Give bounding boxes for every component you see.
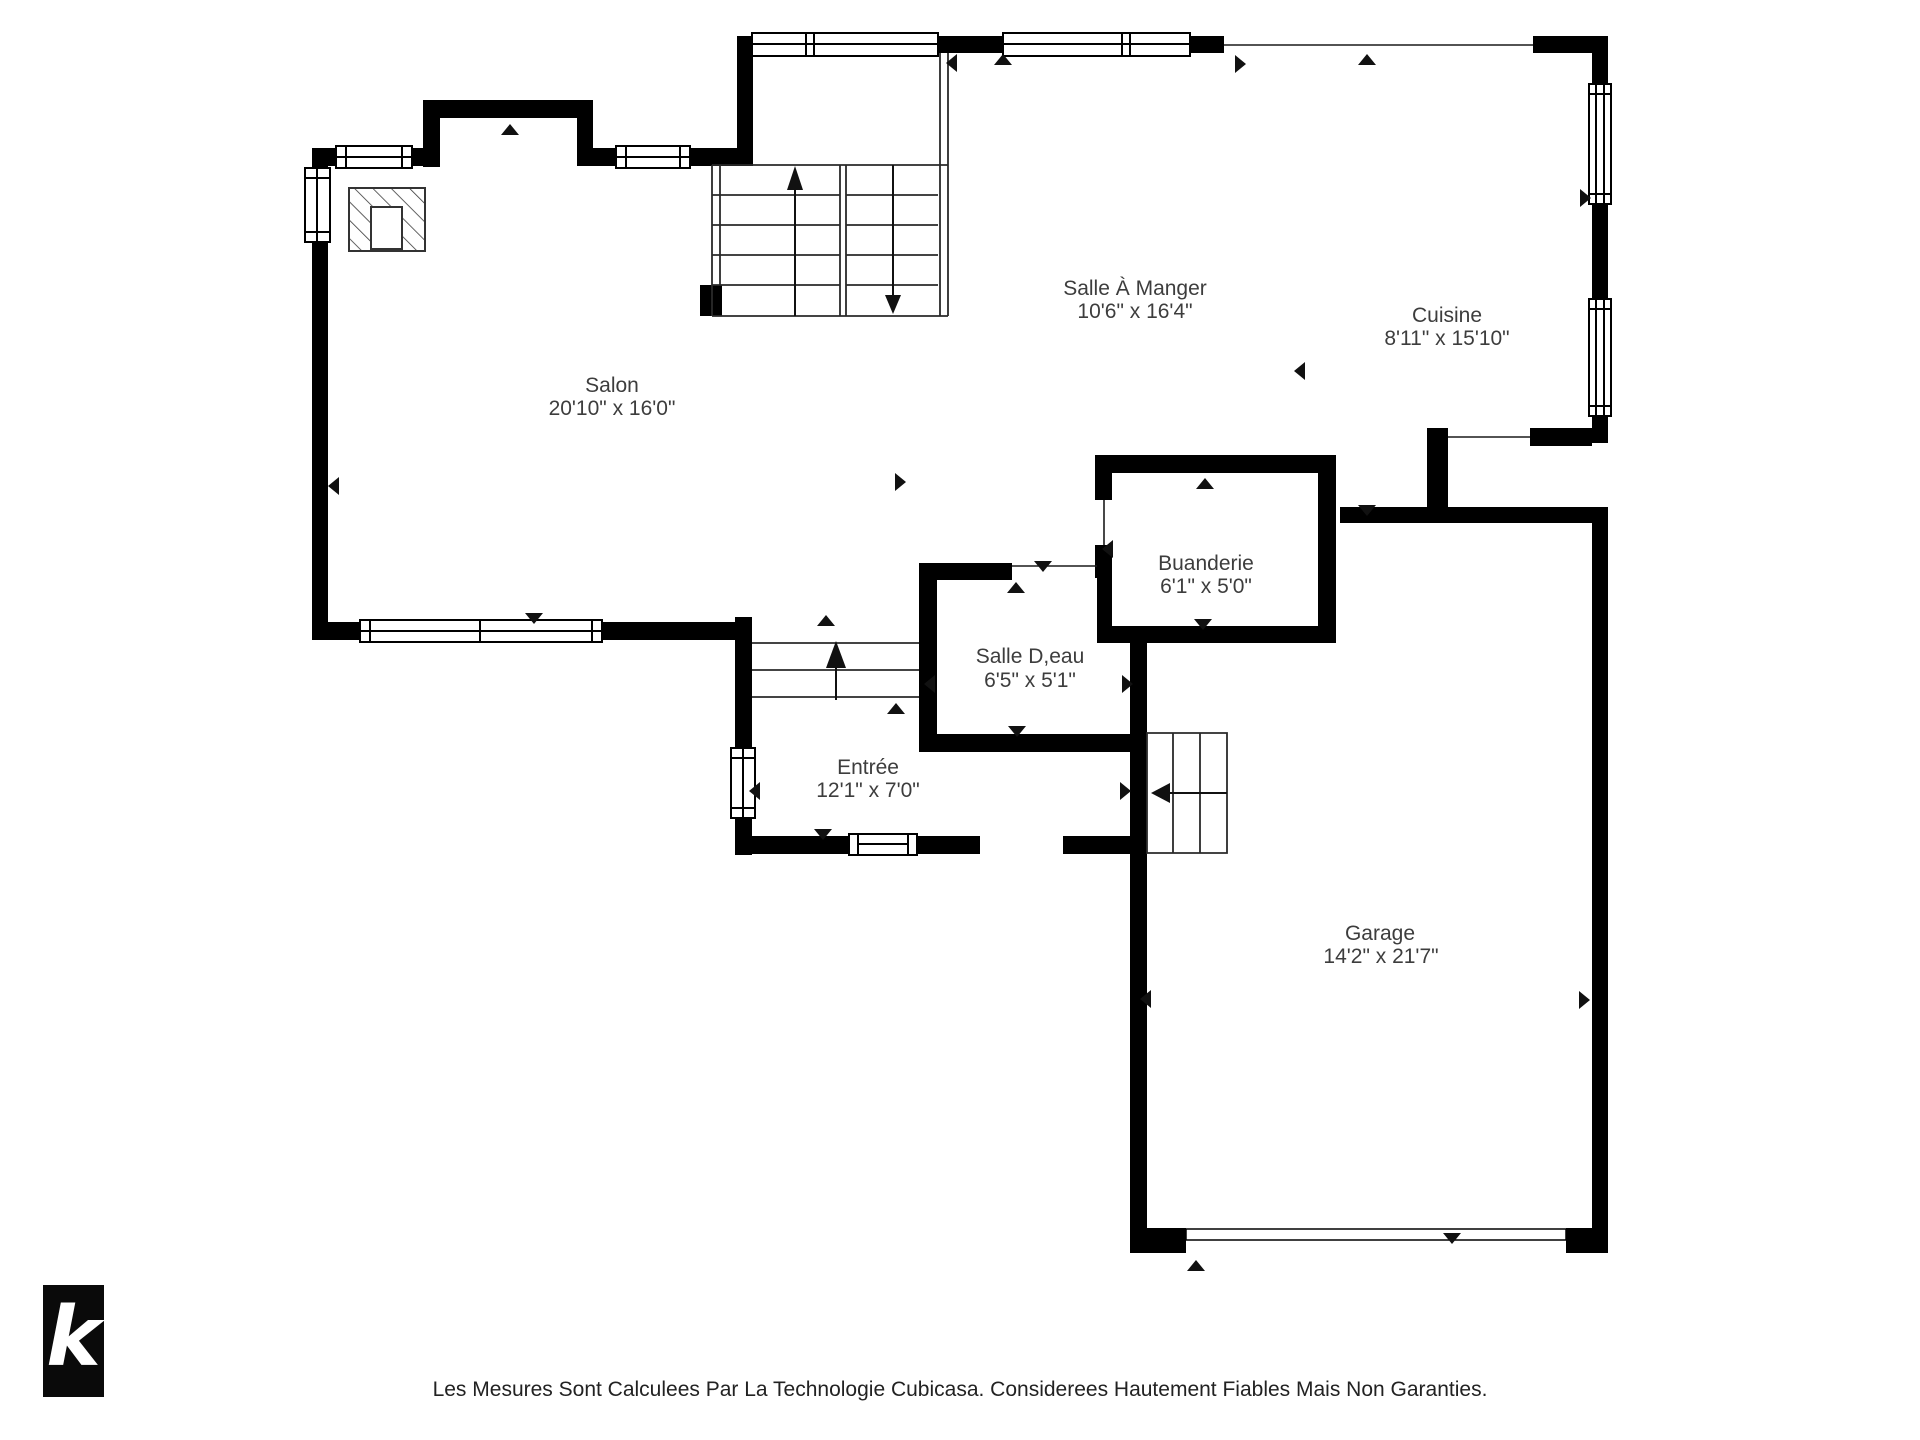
stairs-up-arrow-icon — [787, 166, 803, 190]
room-dimensions: 6'1" x 5'0" — [1160, 575, 1252, 598]
room-label-buanderie: Buanderie 6'1" x 5'0" — [1158, 552, 1254, 598]
room-name: Salle D,eau — [976, 645, 1085, 668]
window-cuisine-right-1 — [1589, 84, 1611, 204]
room-name: Buanderie — [1158, 552, 1254, 575]
window-salon-top-left — [336, 146, 412, 168]
fireplace-firebox — [371, 207, 402, 249]
room-name: Garage — [1345, 922, 1415, 945]
room-dimensions: 12'1" x 7'0" — [816, 779, 920, 802]
window-salon-top-mid — [616, 146, 690, 168]
floorplan-canvas: Salon 20'10" x 16'0" Salle À Manger 10'6… — [0, 0, 1920, 1440]
room-name: Salon — [585, 374, 639, 397]
direction-markers-up-icon — [501, 54, 1376, 1271]
room-label-entree: Entrée 12'1" x 7'0" — [816, 756, 920, 802]
room-dimensions: 6'5" x 5'1" — [984, 669, 1076, 692]
entry-steps-arrow-icon — [826, 641, 846, 668]
room-name: Salle À Manger — [1063, 277, 1207, 300]
room-dimensions: 8'11" x 15'10" — [1384, 327, 1509, 350]
fireplace — [349, 188, 425, 251]
window-dining-top-2 — [1003, 33, 1190, 56]
room-name: Entrée — [837, 756, 899, 779]
window-dining-top-1 — [752, 33, 938, 56]
wall-segments — [312, 36, 1608, 1253]
garage-steps-arrow-icon — [1151, 783, 1170, 803]
window-cuisine-right-2 — [1589, 299, 1611, 416]
room-label-garage: Garage 14'2" x 21'7" — [1323, 922, 1438, 968]
direction-markers-right-icon — [895, 55, 1591, 1009]
room-dimensions: 10'6" x 16'4" — [1077, 300, 1192, 323]
logo-letter: k — [46, 1297, 101, 1379]
entry-steps — [752, 641, 919, 700]
room-dimensions: 14'2" x 21'7" — [1323, 945, 1438, 968]
window-salon-bottom — [360, 620, 602, 642]
room-label-salle-deau: Salle D,eau 6'5" x 5'1" — [976, 645, 1085, 692]
room-label-salon: Salon 20'10" x 16'0" — [549, 374, 676, 420]
window-entree-left — [731, 748, 755, 818]
measurement-disclaimer: Les Mesures Sont Calculees Par La Techno… — [0, 1378, 1920, 1402]
direction-markers-left-icon — [328, 54, 1305, 1008]
front-door — [849, 834, 917, 855]
room-label-cuisine: Cuisine 8'11" x 15'10" — [1384, 304, 1509, 350]
garage-steps — [1147, 733, 1227, 853]
garage-door — [1186, 1229, 1566, 1240]
room-label-salle-a-manger: Salle À Manger 10'6" x 16'4" — [1063, 277, 1207, 323]
window-salon-left — [305, 168, 330, 242]
room-dimensions: 20'10" x 16'0" — [549, 397, 676, 420]
stairs-down-arrow-icon — [885, 295, 901, 314]
room-name: Cuisine — [1412, 304, 1482, 327]
